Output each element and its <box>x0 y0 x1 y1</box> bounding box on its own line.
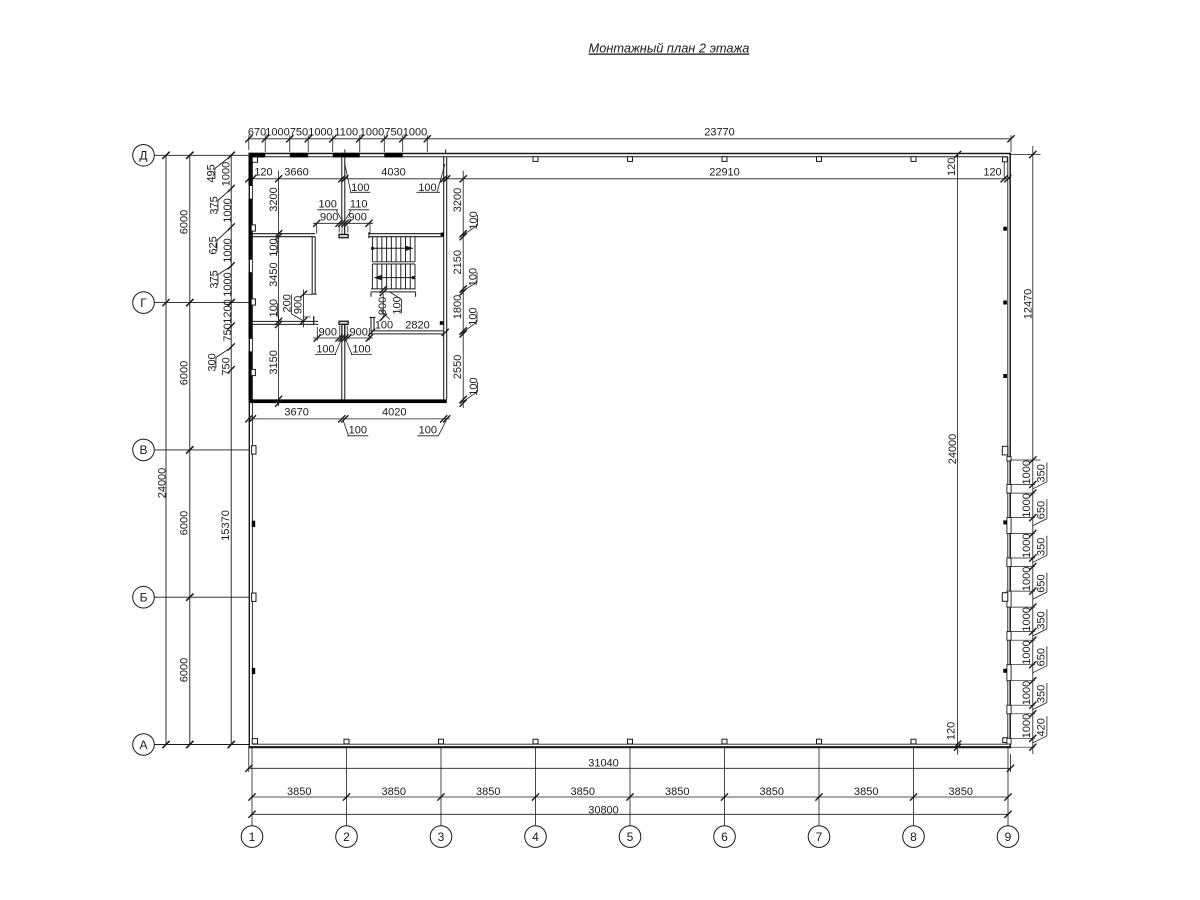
svg-text:31040: 31040 <box>588 757 619 769</box>
svg-text:3850: 3850 <box>665 786 689 798</box>
svg-text:100: 100 <box>419 424 437 436</box>
svg-text:300: 300 <box>207 353 219 371</box>
svg-text:8: 8 <box>910 830 917 844</box>
svg-text:3850: 3850 <box>571 786 595 798</box>
svg-text:420: 420 <box>1036 718 1048 736</box>
svg-text:3850: 3850 <box>949 786 973 798</box>
svg-text:100: 100 <box>468 377 480 395</box>
svg-text:6: 6 <box>721 830 728 844</box>
svg-text:6000: 6000 <box>178 658 190 682</box>
svg-text:350: 350 <box>1036 685 1048 703</box>
svg-text:100: 100 <box>375 320 393 332</box>
svg-text:750: 750 <box>221 357 233 375</box>
svg-text:350: 350 <box>1036 464 1048 482</box>
svg-text:1000: 1000 <box>308 126 332 138</box>
svg-text:100: 100 <box>319 199 337 211</box>
svg-text:3200: 3200 <box>268 187 280 211</box>
svg-text:900: 900 <box>349 212 367 224</box>
svg-text:100: 100 <box>468 307 480 325</box>
svg-text:670: 670 <box>248 126 266 138</box>
svg-text:24000: 24000 <box>947 434 959 465</box>
svg-text:4030: 4030 <box>381 166 405 178</box>
svg-text:1000: 1000 <box>1021 493 1033 517</box>
svg-text:6000: 6000 <box>178 210 190 234</box>
svg-text:3850: 3850 <box>854 786 878 798</box>
svg-text:3660: 3660 <box>284 166 308 178</box>
svg-text:1000: 1000 <box>1021 607 1033 631</box>
svg-text:1000: 1000 <box>1021 681 1033 705</box>
svg-text:110: 110 <box>350 199 368 211</box>
svg-text:22910: 22910 <box>709 166 740 178</box>
svg-text:Д: Д <box>139 149 147 163</box>
svg-text:3150: 3150 <box>268 350 280 374</box>
svg-text:3850: 3850 <box>287 786 311 798</box>
svg-text:3450: 3450 <box>268 262 280 286</box>
svg-text:900: 900 <box>319 327 337 339</box>
svg-text:12470: 12470 <box>1022 289 1034 320</box>
svg-text:120: 120 <box>946 722 958 740</box>
svg-text:4: 4 <box>532 830 539 844</box>
svg-text:1000: 1000 <box>1021 640 1033 664</box>
svg-text:6000: 6000 <box>178 511 190 535</box>
svg-text:В: В <box>139 443 147 457</box>
svg-text:100: 100 <box>268 299 280 317</box>
svg-text:120: 120 <box>983 166 1001 178</box>
svg-text:9: 9 <box>1005 830 1012 844</box>
svg-text:1000: 1000 <box>403 126 427 138</box>
svg-text:100: 100 <box>468 268 480 286</box>
svg-text:900: 900 <box>320 212 338 224</box>
svg-text:Б: Б <box>140 591 148 605</box>
svg-text:1000: 1000 <box>1021 567 1033 591</box>
svg-text:Монтажный план 2 этажа: Монтажный план 2 этажа <box>589 41 750 56</box>
svg-text:625: 625 <box>208 236 220 254</box>
svg-text:2820: 2820 <box>405 320 429 332</box>
svg-text:3: 3 <box>438 830 445 844</box>
svg-text:23770: 23770 <box>704 126 735 138</box>
svg-text:100: 100 <box>468 211 480 229</box>
svg-text:120: 120 <box>254 166 272 178</box>
svg-text:650: 650 <box>1036 574 1048 592</box>
svg-text:3850: 3850 <box>760 786 784 798</box>
svg-text:1000: 1000 <box>360 126 384 138</box>
svg-text:750: 750 <box>384 126 402 138</box>
svg-text:900: 900 <box>350 327 368 339</box>
svg-text:1: 1 <box>249 830 256 844</box>
svg-text:2: 2 <box>343 830 350 844</box>
svg-text:1200: 1200 <box>222 299 234 323</box>
svg-text:1000: 1000 <box>221 162 233 186</box>
svg-text:3200: 3200 <box>452 188 464 212</box>
svg-text:1000: 1000 <box>1021 534 1033 558</box>
svg-text:4020: 4020 <box>382 406 406 418</box>
svg-text:350: 350 <box>1036 611 1048 629</box>
svg-text:2550: 2550 <box>452 355 464 379</box>
svg-text:1100: 1100 <box>334 126 358 138</box>
svg-text:100: 100 <box>352 343 370 355</box>
svg-text:120: 120 <box>946 158 958 176</box>
svg-text:1000: 1000 <box>222 198 234 222</box>
svg-text:900: 900 <box>293 296 305 314</box>
svg-text:15370: 15370 <box>220 510 232 541</box>
svg-text:1000: 1000 <box>222 238 234 262</box>
svg-text:2150: 2150 <box>452 250 464 274</box>
svg-text:1000: 1000 <box>265 126 289 138</box>
svg-text:24000: 24000 <box>157 468 169 499</box>
svg-text:5: 5 <box>627 830 634 844</box>
svg-text:350: 350 <box>1036 538 1048 556</box>
svg-text:375: 375 <box>209 270 221 288</box>
svg-text:750: 750 <box>222 323 234 341</box>
svg-text:3850: 3850 <box>382 786 406 798</box>
svg-text:6000: 6000 <box>178 361 190 385</box>
svg-text:3850: 3850 <box>476 786 500 798</box>
svg-text:3670: 3670 <box>284 406 308 418</box>
svg-text:375: 375 <box>209 196 221 214</box>
svg-text:650: 650 <box>1036 501 1048 519</box>
svg-text:1000: 1000 <box>222 272 234 296</box>
svg-text:100: 100 <box>316 343 334 355</box>
svg-text:1000: 1000 <box>1021 460 1033 484</box>
svg-text:650: 650 <box>1036 648 1048 666</box>
svg-text:1000: 1000 <box>1021 714 1033 738</box>
svg-text:495: 495 <box>206 164 218 182</box>
svg-text:30800: 30800 <box>588 805 619 817</box>
svg-text:Г: Г <box>140 296 147 310</box>
svg-text:1800: 1800 <box>452 295 464 319</box>
svg-text:100: 100 <box>349 424 367 436</box>
svg-text:7: 7 <box>816 830 823 844</box>
svg-text:750: 750 <box>290 126 308 138</box>
svg-text:А: А <box>139 738 147 752</box>
